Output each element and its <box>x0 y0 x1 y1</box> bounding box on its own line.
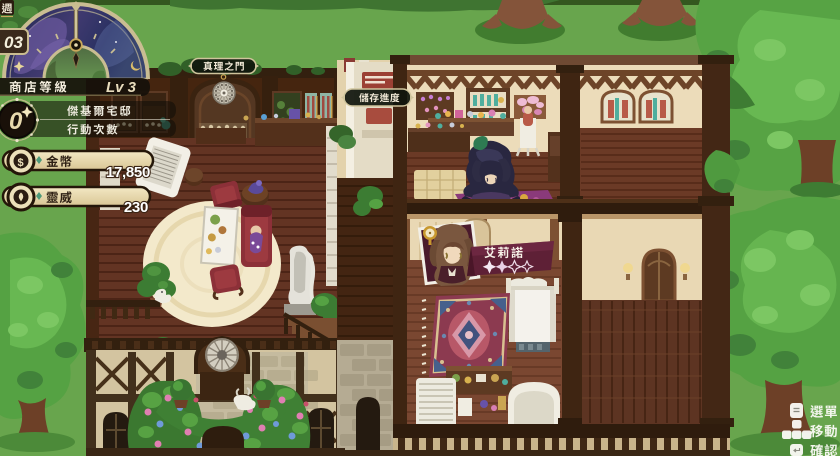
svg-text:17,850: 17,850 <box>106 164 150 181</box>
svg-text:230: 230 <box>124 199 148 216</box>
svg-text:0: 0 <box>9 108 23 135</box>
svg-text:Lv 3: Lv 3 <box>106 79 137 96</box>
svg-text:$: $ <box>18 157 24 169</box>
svg-text:03: 03 <box>4 33 23 52</box>
